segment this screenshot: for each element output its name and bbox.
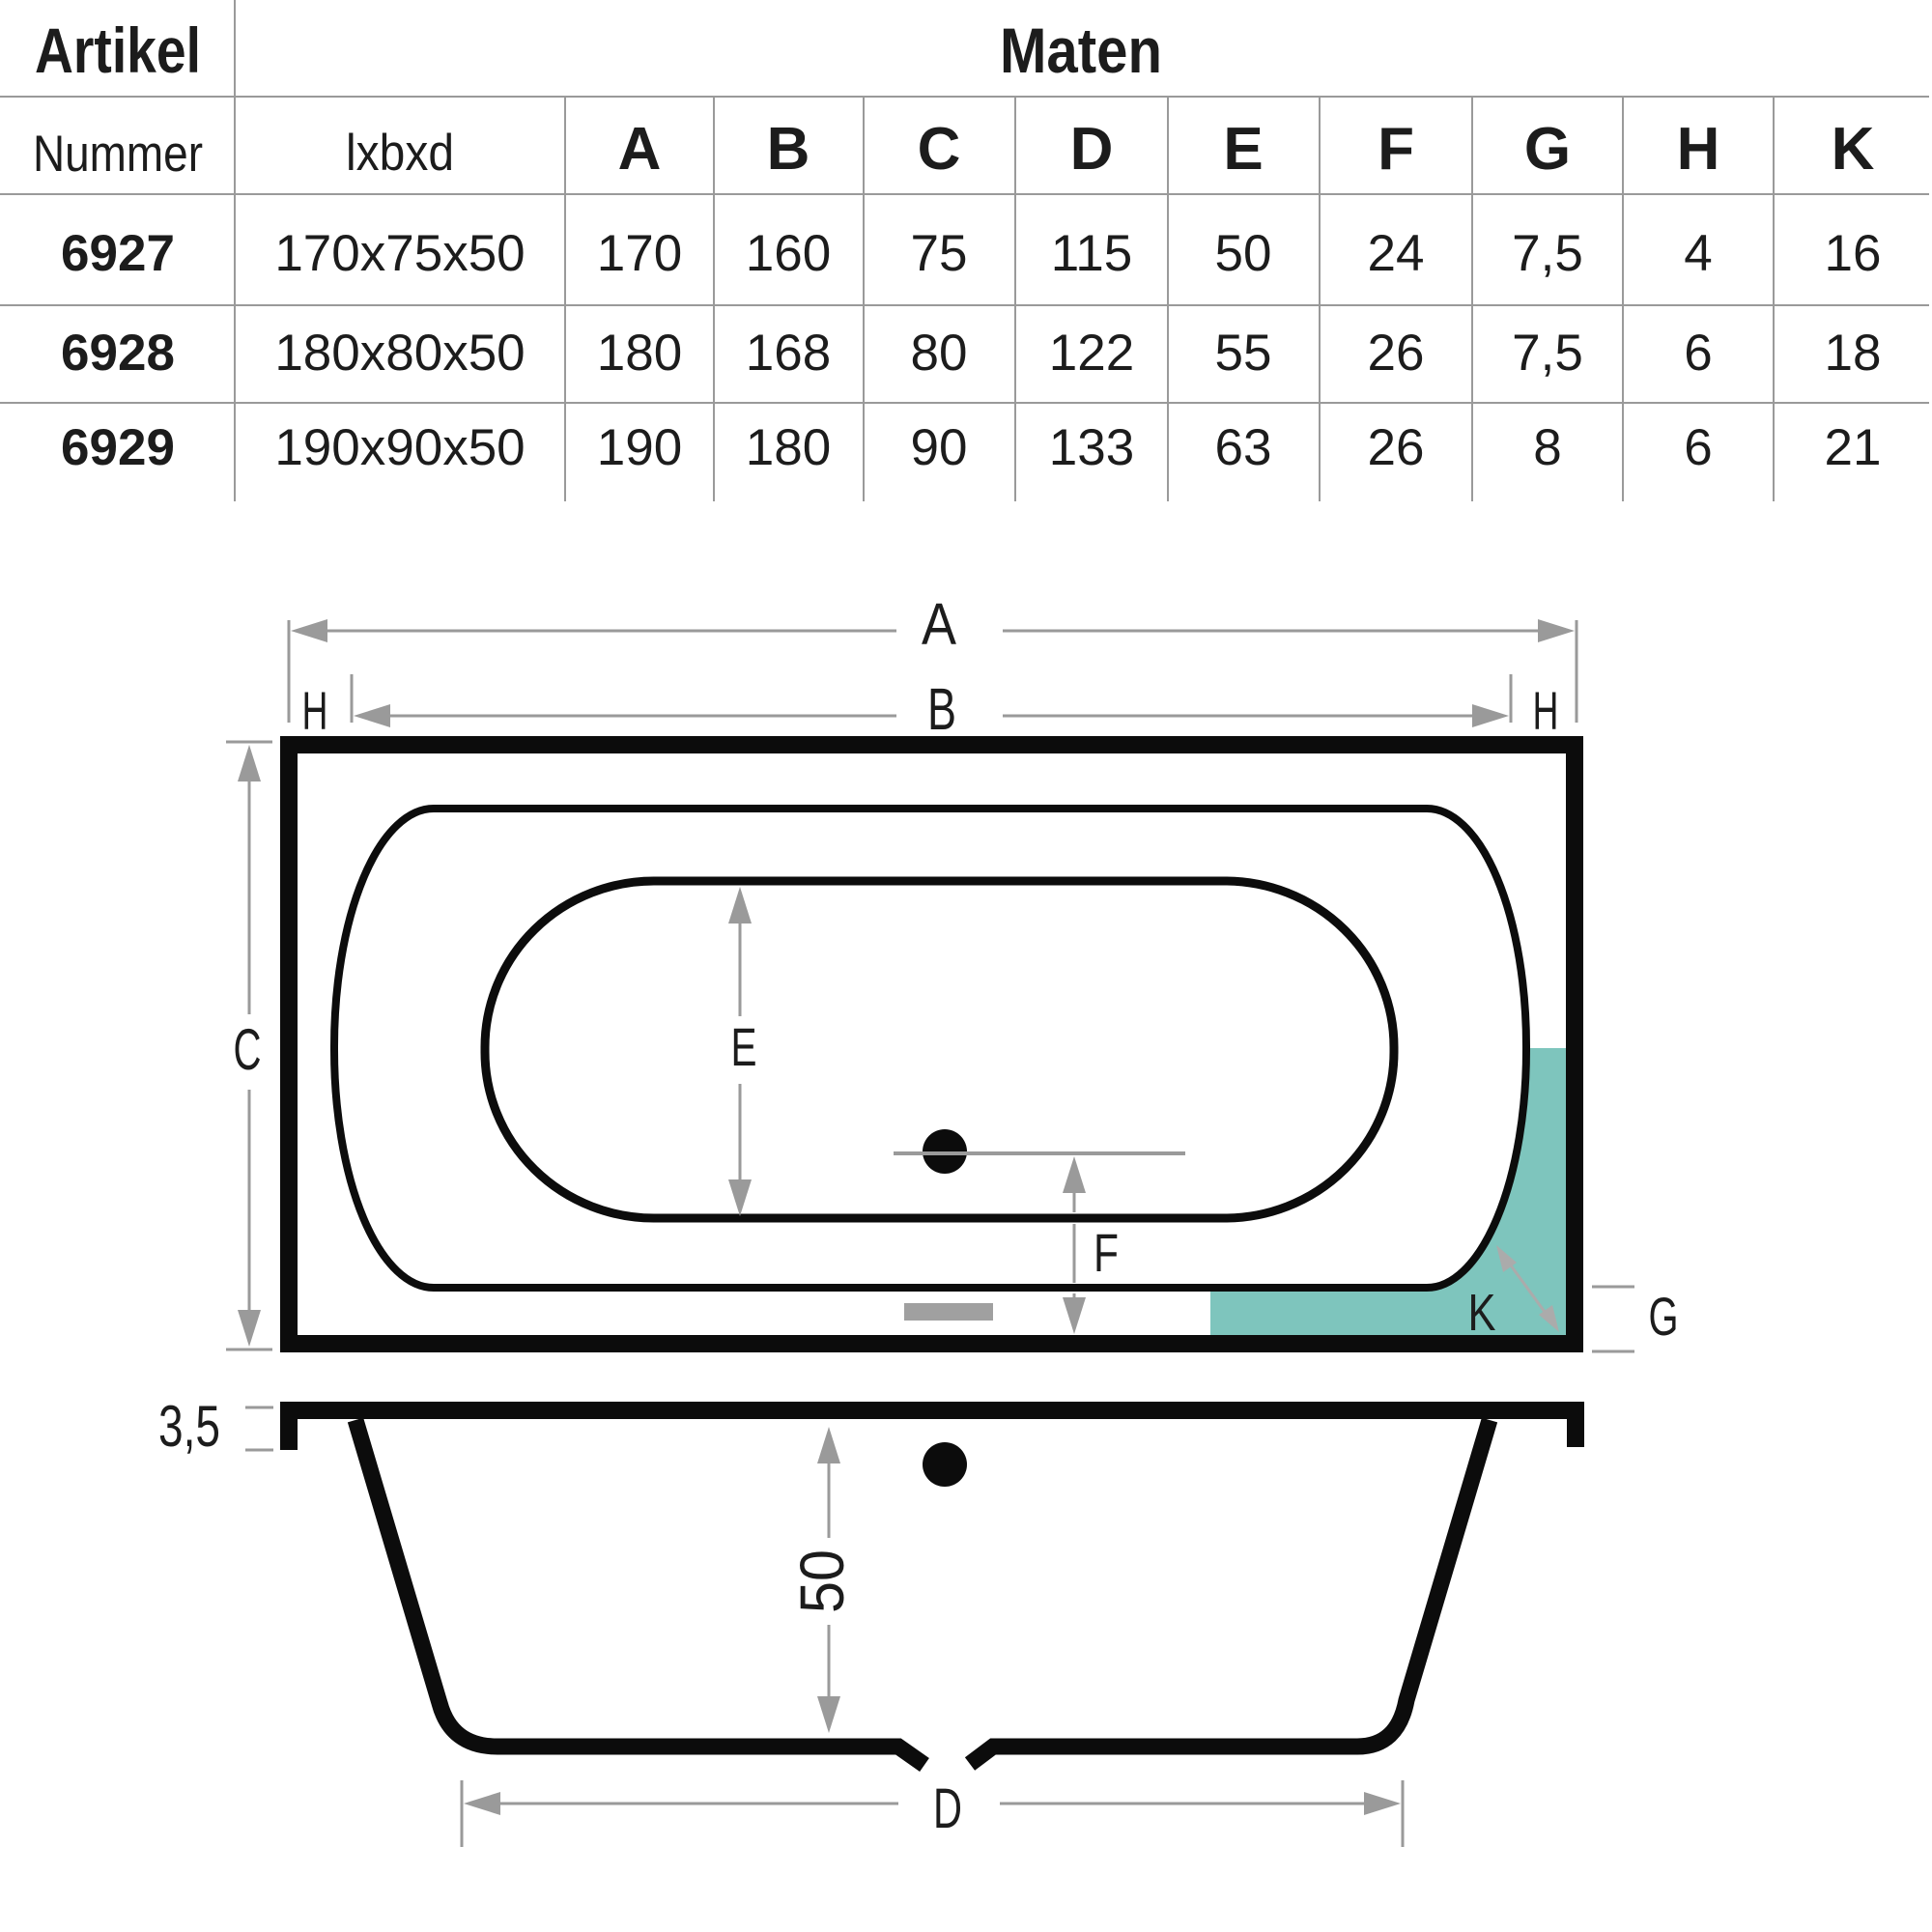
svg-text:F: F <box>1094 1222 1119 1283</box>
svg-text:7,5: 7,5 <box>1512 225 1583 282</box>
svg-text:H: H <box>1533 680 1559 741</box>
svg-text:75: 75 <box>911 225 968 282</box>
svg-text:24: 24 <box>1368 225 1425 282</box>
svg-text:50: 50 <box>787 1549 857 1613</box>
svg-text:K: K <box>1832 116 1875 183</box>
svg-text:7,5: 7,5 <box>1512 325 1583 382</box>
svg-text:4: 4 <box>1684 225 1712 282</box>
svg-text:Maten: Maten <box>1000 14 1162 86</box>
svg-text:133: 133 <box>1049 419 1134 476</box>
svg-text:180: 180 <box>746 419 831 476</box>
svg-text:8: 8 <box>1533 419 1561 476</box>
svg-text:K: K <box>1468 1284 1496 1342</box>
svg-text:63: 63 <box>1215 419 1272 476</box>
svg-text:26: 26 <box>1368 325 1425 382</box>
svg-text:F: F <box>1378 116 1414 183</box>
svg-text:160: 160 <box>746 225 831 282</box>
svg-text:6927: 6927 <box>61 225 175 282</box>
svg-text:A: A <box>618 116 662 183</box>
svg-text:H: H <box>1677 116 1720 183</box>
svg-text:C: C <box>918 116 961 183</box>
svg-text:55: 55 <box>1215 325 1272 382</box>
svg-text:80: 80 <box>911 325 968 382</box>
svg-text:Nummer: Nummer <box>33 126 203 183</box>
svg-text:180x80x50: 180x80x50 <box>274 325 525 382</box>
svg-text:6: 6 <box>1684 325 1712 382</box>
svg-text:90: 90 <box>911 419 968 476</box>
svg-text:190: 190 <box>597 419 682 476</box>
svg-text:G: G <box>1524 116 1571 183</box>
svg-text:6928: 6928 <box>61 325 175 382</box>
svg-text:G: G <box>1649 1286 1679 1347</box>
svg-text:21: 21 <box>1825 419 1882 476</box>
svg-text:180: 180 <box>597 325 682 382</box>
svg-text:H: H <box>302 680 328 741</box>
svg-text:6: 6 <box>1684 419 1712 476</box>
svg-text:115: 115 <box>1051 225 1133 282</box>
svg-text:122: 122 <box>1049 325 1134 382</box>
svg-text:50: 50 <box>1215 225 1272 282</box>
svg-text:170x75x50: 170x75x50 <box>274 225 525 282</box>
svg-text:18: 18 <box>1825 325 1882 382</box>
svg-text:B: B <box>767 116 810 183</box>
svg-text:Artikel: Artikel <box>35 14 201 86</box>
svg-text:E: E <box>731 1016 757 1077</box>
svg-text:170: 170 <box>597 225 682 282</box>
svg-text:E: E <box>1223 116 1263 183</box>
svg-text:168: 168 <box>746 325 831 382</box>
svg-text:B: B <box>927 676 956 742</box>
svg-text:16: 16 <box>1825 225 1882 282</box>
svg-text:D: D <box>933 1777 962 1840</box>
svg-text:6929: 6929 <box>61 419 175 476</box>
svg-text:3,5: 3,5 <box>158 1394 220 1459</box>
svg-text:26: 26 <box>1368 419 1425 476</box>
svg-text:lxbxd: lxbxd <box>346 125 454 182</box>
svg-text:190x90x50: 190x90x50 <box>274 419 525 476</box>
svg-text:A: A <box>922 591 956 657</box>
svg-text:C: C <box>234 1017 262 1082</box>
svg-text:D: D <box>1070 116 1114 183</box>
